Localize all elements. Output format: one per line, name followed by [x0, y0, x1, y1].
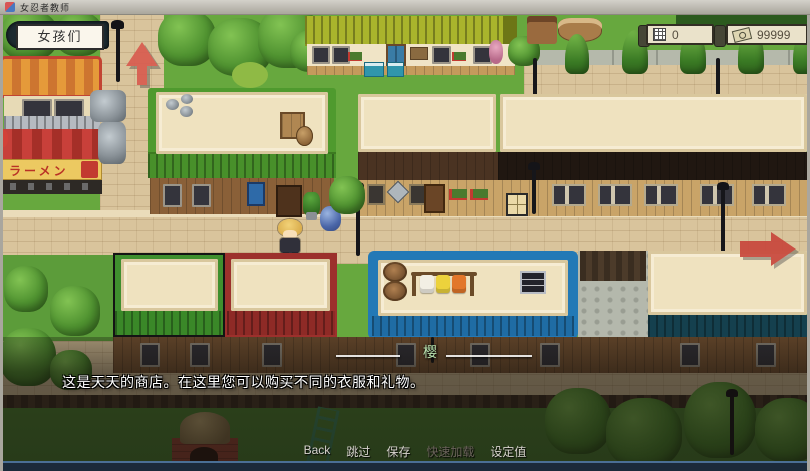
picture-frame [367, 184, 385, 205]
barrel [383, 281, 407, 301]
blue-roof-edge [372, 316, 574, 336]
quick-menu-save[interactable]: 保存 [386, 443, 410, 460]
window-pair [552, 184, 586, 206]
porch [307, 66, 515, 75]
lamppost-head [717, 182, 729, 190]
window [312, 46, 330, 64]
window-pair [752, 184, 786, 206]
window-border-bottom [0, 461, 810, 471]
app-icon [5, 2, 15, 12]
arrow-stem [137, 65, 147, 85]
blue-bin [364, 62, 384, 77]
picture-frame [410, 47, 428, 60]
top-building-roof [305, 16, 517, 46]
ramen-shop-awning [0, 56, 102, 98]
teal-roof-edge [648, 315, 807, 339]
money-counter: 99999 [726, 24, 808, 45]
flower-box [470, 189, 488, 200]
lamppost [721, 186, 725, 256]
window [432, 46, 451, 64]
player-body [280, 238, 300, 253]
rooftop [121, 259, 218, 311]
tree [158, 10, 216, 66]
flower-box [348, 52, 362, 61]
quick-menu-prefs[interactable]: 设定值 [490, 443, 526, 460]
blossom-plant [489, 40, 503, 64]
money-icon [732, 27, 752, 43]
fascia-dark [498, 152, 807, 180]
rooftop [231, 259, 330, 311]
arrow-head [126, 42, 158, 66]
lamppost-head [111, 20, 124, 29]
cloth-roll-white [420, 275, 434, 293]
barrel [296, 126, 313, 146]
window [163, 184, 182, 207]
day-counter: 0 [646, 24, 714, 45]
wood-fence [580, 251, 646, 281]
cloth-roll-orange [452, 275, 466, 293]
lamppost [532, 166, 536, 214]
money-counter-value: 99999 [757, 28, 790, 42]
display-rack-post [470, 274, 474, 296]
arrow-head [771, 232, 796, 266]
shop-sign [247, 182, 265, 206]
title-bar: 女忍者教师 [0, 0, 810, 15]
red-roof-edge [227, 311, 335, 335]
door [276, 185, 302, 217]
plant-pot [306, 212, 317, 220]
lamppost-head [528, 162, 540, 170]
lantern-sign [506, 193, 528, 216]
lamppost [716, 58, 720, 96]
pipes-machinery [98, 122, 126, 164]
speaker-name: 樱 [400, 342, 460, 362]
location-button[interactable]: 女孩们 [16, 24, 104, 50]
lamppost [533, 58, 537, 96]
quick-menu-skip[interactable]: 跳过 [346, 443, 370, 460]
green-roof-edge [115, 311, 223, 335]
quick-menu: Back 跳过 保存 快速加载 设定值 [250, 443, 580, 460]
jar [166, 99, 179, 110]
shrine [527, 16, 557, 44]
jar [181, 94, 193, 104]
ramen-shop-curtain [2, 129, 102, 159]
flower-box [452, 52, 466, 61]
counter-cap [714, 25, 726, 47]
dialogue-text: 这是天天的商店。在这里您可以购买不同的衣服和礼物。 [62, 372, 792, 392]
green-roof-edge [148, 152, 336, 178]
window-border-left [0, 14, 3, 471]
barrel [383, 262, 407, 282]
game-window: ラーメン [0, 0, 810, 471]
window-title: 女忍者教师 [20, 1, 70, 14]
calendar-grid-icon [653, 28, 666, 41]
lamppost [116, 24, 120, 82]
map-exit-up-arrow[interactable] [126, 42, 158, 86]
speaker-name-line [446, 355, 532, 357]
quick-menu-qload[interactable]: 快速加载 [426, 443, 474, 460]
arrow-stem [740, 241, 772, 257]
window-pair [598, 184, 632, 206]
tree [4, 266, 48, 312]
balcony-railing [4, 116, 100, 129]
ramen-sign-stamp [81, 161, 98, 178]
display-rack-post [412, 274, 416, 296]
door [424, 184, 445, 213]
tree [50, 286, 100, 336]
rooftop [358, 94, 496, 152]
fascia [358, 152, 498, 180]
cloth-roll-yellow [436, 275, 450, 293]
blue-bin [387, 62, 404, 77]
jar [180, 106, 193, 117]
map-exit-right-arrow[interactable] [740, 232, 796, 266]
flower-box [449, 189, 467, 200]
notice-board [520, 271, 546, 294]
window [192, 184, 211, 207]
rooftop [500, 94, 807, 152]
ramen-sign-text: ラーメン [9, 162, 69, 179]
speaker-name-line [336, 355, 400, 357]
stools [10, 183, 96, 190]
quick-menu-back[interactable]: Back [304, 443, 331, 460]
pipes-machinery [90, 90, 126, 122]
window-pair [644, 184, 678, 206]
bush [232, 62, 268, 88]
tree [329, 176, 365, 214]
day-counter-value: 0 [672, 28, 679, 42]
